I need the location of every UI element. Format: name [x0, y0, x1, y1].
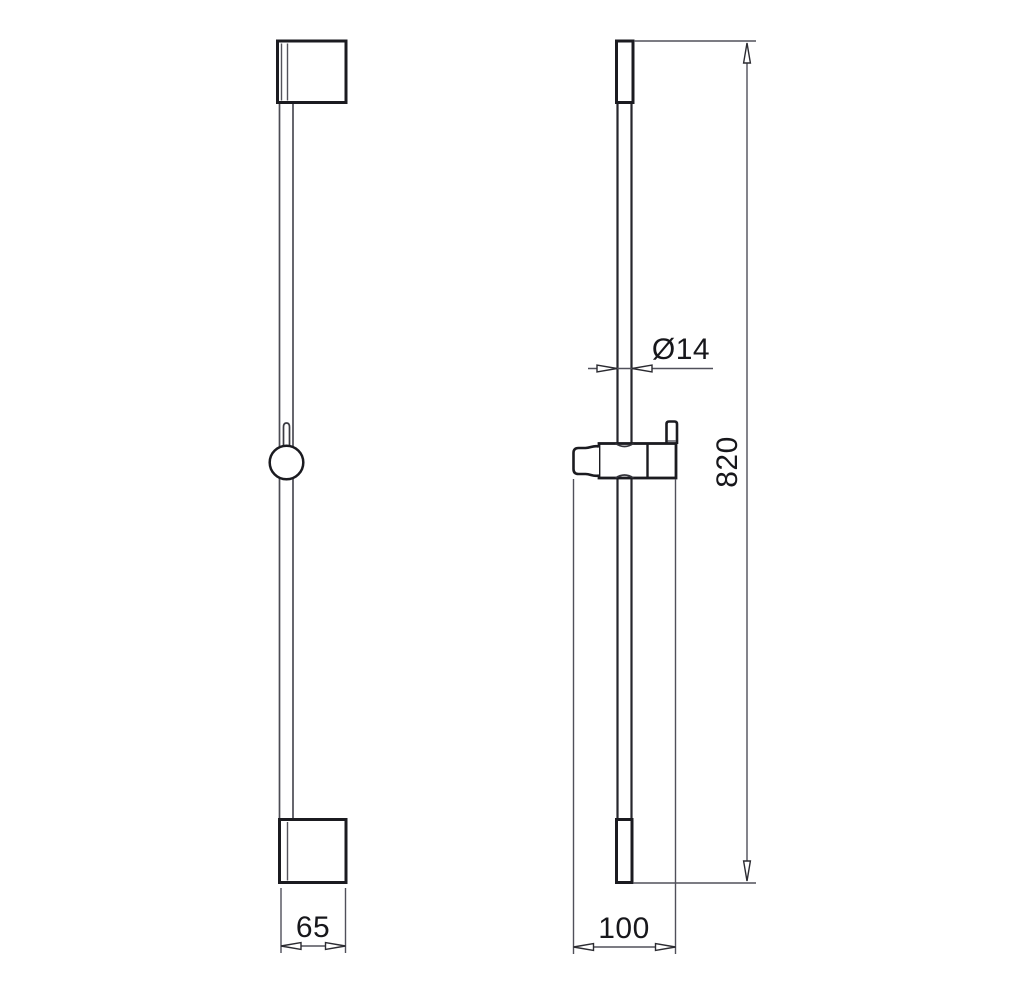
dim-100-arrow-right [656, 944, 676, 951]
side-top-mount [617, 41, 634, 103]
side-bottom-mount [617, 820, 633, 883]
dim-depth-label: 100 [598, 912, 650, 945]
dim-100-arrow-left [574, 944, 594, 951]
front-slider-knob [270, 446, 304, 480]
dim-dia-arrow-left [597, 365, 617, 372]
front-bottom-mount [280, 820, 347, 883]
bracket-knob [574, 446, 600, 476]
dim-dia-arrow-right [632, 365, 652, 372]
side-holder-bracket [574, 422, 678, 479]
technical-drawing-page: 65 [0, 0, 1024, 985]
front-view [270, 41, 346, 883]
dim-height-label: 820 [711, 436, 744, 488]
dim-820-arrow-top [744, 43, 751, 63]
bracket-body [599, 444, 676, 479]
side-view [574, 41, 678, 883]
dim-diameter-label: Ø14 [652, 333, 710, 366]
dimension-width-65: 65 [281, 888, 346, 953]
dim-width-label: 65 [296, 911, 330, 944]
front-slider-pin [284, 423, 290, 447]
dim-820-arrow-bottom [744, 861, 751, 881]
dimension-diameter-14: Ø14 [588, 333, 713, 372]
shower-rail-drawing: 65 [0, 0, 1024, 985]
